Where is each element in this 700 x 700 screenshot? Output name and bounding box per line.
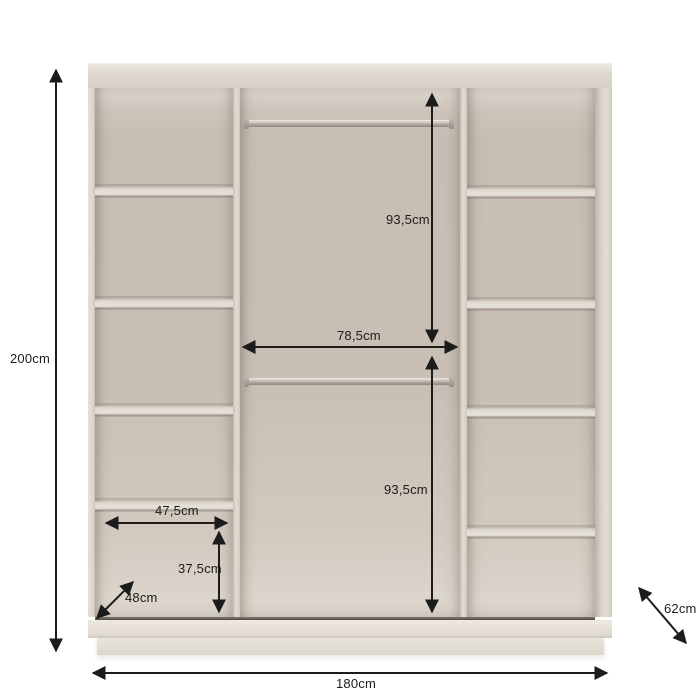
depth-dimension-label: 62cm — [664, 602, 697, 616]
left-partition-panel — [233, 88, 240, 617]
shelf — [95, 296, 233, 310]
height-dimension-label: 200cm — [10, 352, 50, 366]
middle-hanging-section — [240, 88, 460, 617]
diagram-stage: 200cm 180cm 93,5cm 78,5cm 93,5cm 47,5cm … — [0, 0, 700, 700]
left-shelf-column — [95, 88, 233, 617]
lower-hanging-dimension-label: 93,5cm — [384, 483, 428, 497]
wardrobe-left-side-panel — [88, 88, 95, 617]
width-dimension-label: 180cm — [336, 677, 376, 691]
shelf-width-dimension-label: 47,5cm — [155, 504, 199, 518]
wardrobe-right-side-panel — [595, 88, 612, 617]
wardrobe-base-panel — [88, 620, 612, 638]
shelf — [467, 185, 595, 199]
shelf-depth-dimension-label: 48cm — [125, 591, 158, 605]
shelf — [467, 525, 595, 539]
shelf — [467, 405, 595, 419]
bottom-compartment-dimension-label: 37,5cm — [178, 562, 222, 576]
upper-hanging-dimension-label: 93,5cm — [386, 213, 430, 227]
shelf — [467, 297, 595, 311]
shelf — [95, 403, 233, 417]
hanging-rail-lower — [246, 378, 452, 385]
right-shelf-column — [467, 88, 595, 617]
hanging-rail-upper — [246, 120, 452, 127]
wardrobe-dimension-diagram: { "figure": { "title": "Wardrobe interio… — [0, 0, 700, 700]
hanging-width-dimension-label: 78,5cm — [337, 329, 381, 343]
wardrobe-top-panel — [88, 63, 612, 89]
right-partition-panel — [460, 88, 467, 617]
shelf — [95, 184, 233, 198]
wardrobe-plinth — [97, 638, 604, 655]
